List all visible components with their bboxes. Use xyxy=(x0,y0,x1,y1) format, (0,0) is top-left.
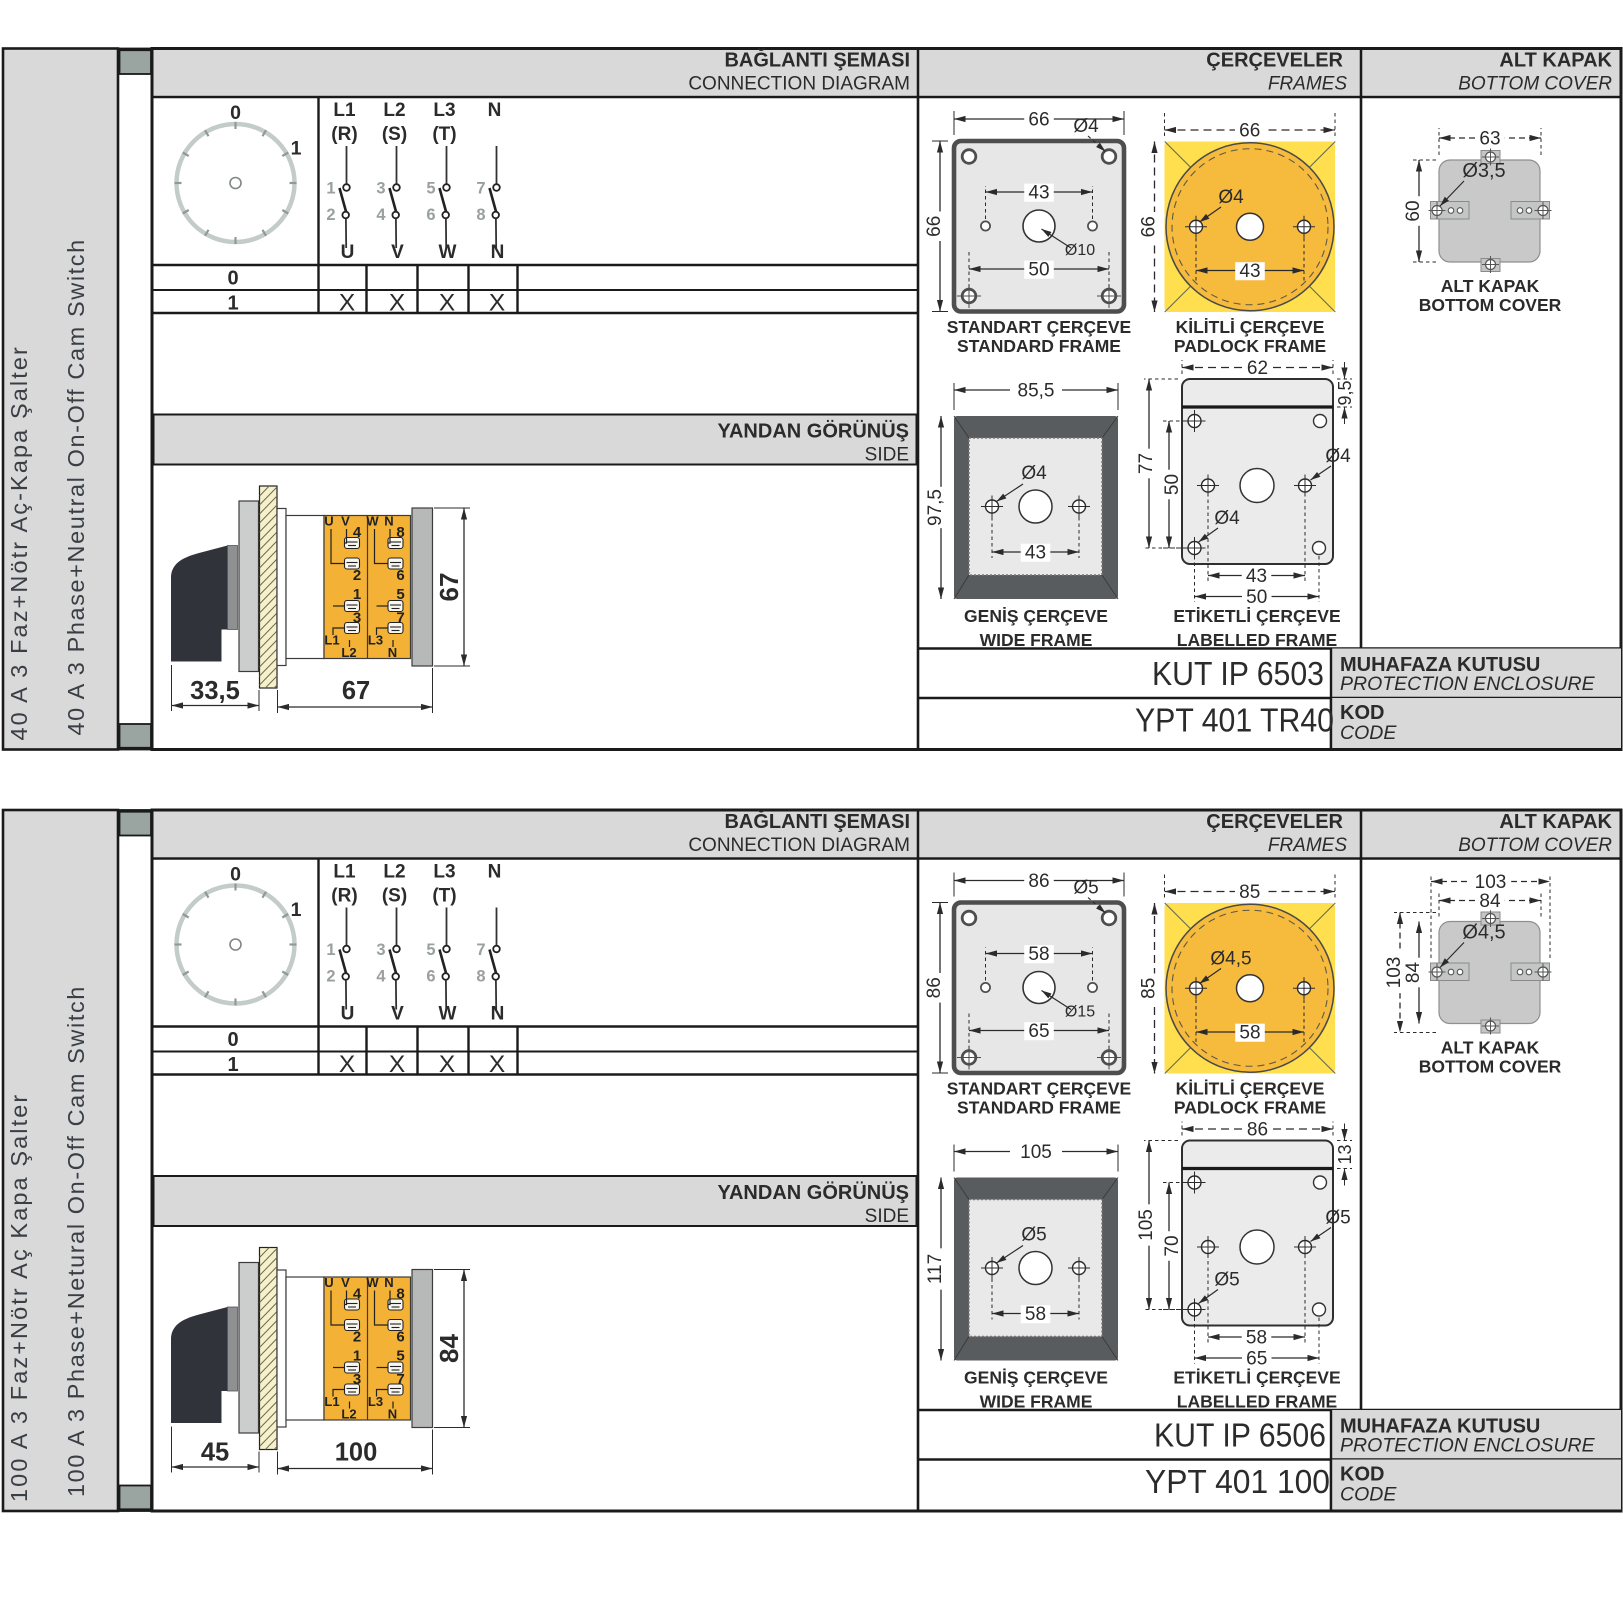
svg-text:43: 43 xyxy=(1246,566,1267,587)
svg-text:BOTTOM COVER: BOTTOM COVER xyxy=(1458,835,1612,856)
svg-text:3: 3 xyxy=(376,941,385,959)
svg-text:ALT KAPAK: ALT KAPAK xyxy=(1441,1038,1540,1058)
svg-text:ALT KAPAK: ALT KAPAK xyxy=(1499,811,1612,833)
svg-text:Ø4,5: Ø4,5 xyxy=(1210,949,1251,970)
svg-text:BAĞLANTI ŞEMASI: BAĞLANTI ŞEMASI xyxy=(724,48,910,72)
svg-text:50: 50 xyxy=(1028,260,1049,281)
svg-text:KUT IP 6506: KUT IP 6506 xyxy=(1154,1417,1326,1454)
svg-text:84: 84 xyxy=(434,1334,464,1363)
svg-text:X: X xyxy=(439,1051,455,1078)
svg-text:V: V xyxy=(341,1275,350,1290)
svg-text:PROTECTION ENCLOSURE: PROTECTION ENCLOSURE xyxy=(1340,1435,1596,1457)
svg-text:N: N xyxy=(488,862,502,883)
svg-text:N: N xyxy=(384,514,393,529)
svg-text:X: X xyxy=(489,290,505,317)
svg-text:Ø10: Ø10 xyxy=(1065,242,1095,259)
svg-text:1: 1 xyxy=(291,138,302,160)
svg-text:100: 100 xyxy=(335,1439,378,1467)
svg-text:0: 0 xyxy=(230,864,241,886)
svg-text:Ø4: Ø4 xyxy=(1021,463,1047,484)
svg-text:7: 7 xyxy=(476,941,485,959)
svg-text:N: N xyxy=(384,1275,393,1290)
svg-text:N: N xyxy=(491,242,505,263)
svg-text:KUT IP 6503: KUT IP 6503 xyxy=(1152,655,1324,692)
svg-text:58: 58 xyxy=(1028,944,1049,965)
svg-text:43: 43 xyxy=(1028,183,1049,204)
svg-text:STANDART ÇERÇEVE: STANDART ÇERÇEVE xyxy=(947,317,1131,337)
svg-text:N: N xyxy=(491,1004,505,1025)
svg-text:97,5: 97,5 xyxy=(925,489,946,526)
svg-text:66: 66 xyxy=(1028,110,1049,131)
svg-text:1: 1 xyxy=(326,941,335,959)
svg-text:2: 2 xyxy=(326,968,335,986)
svg-text:X: X xyxy=(339,1051,355,1078)
svg-text:BAĞLANTI ŞEMASI: BAĞLANTI ŞEMASI xyxy=(724,809,910,833)
svg-text:X: X xyxy=(389,1051,405,1078)
svg-text:8: 8 xyxy=(476,968,485,986)
svg-text:N: N xyxy=(388,645,397,660)
svg-text:PROTECTION ENCLOSURE: PROTECTION ENCLOSURE xyxy=(1340,673,1596,695)
svg-text:40 A 3 Phase+Neutral On-Off Ca: 40 A 3 Phase+Neutral On-Off Cam Switch xyxy=(63,238,89,735)
svg-text:77: 77 xyxy=(1136,453,1157,474)
svg-text:X: X xyxy=(339,290,355,317)
svg-text:PADLOCK FRAME: PADLOCK FRAME xyxy=(1174,1098,1326,1118)
svg-text:40 A 3 Faz+Nötr Aç-Kapa Şalter: 40 A 3 Faz+Nötr Aç-Kapa Şalter xyxy=(6,345,32,740)
svg-text:W: W xyxy=(366,514,379,529)
svg-text:117: 117 xyxy=(925,1254,946,1284)
svg-text:X: X xyxy=(439,290,455,317)
svg-text:CONNECTION DIAGRAM: CONNECTION DIAGRAM xyxy=(688,835,910,856)
svg-text:KOD: KOD xyxy=(1340,702,1384,724)
svg-text:86: 86 xyxy=(924,977,945,998)
svg-text:(S): (S) xyxy=(382,886,407,907)
svg-text:Ø4: Ø4 xyxy=(1073,116,1099,137)
svg-text:9,5: 9,5 xyxy=(1335,380,1355,405)
svg-text:2: 2 xyxy=(353,1329,361,1346)
svg-text:W: W xyxy=(439,242,457,263)
svg-text:Ø5: Ø5 xyxy=(1021,1225,1046,1246)
svg-text:Ø5: Ø5 xyxy=(1073,878,1098,899)
svg-text:BOTTOM COVER: BOTTOM COVER xyxy=(1419,295,1562,315)
svg-text:WIDE FRAME: WIDE FRAME xyxy=(980,1392,1093,1412)
svg-text:X: X xyxy=(489,1051,505,1078)
svg-text:STANDARD FRAME: STANDARD FRAME xyxy=(957,336,1121,356)
svg-text:W: W xyxy=(439,1004,457,1025)
svg-text:U: U xyxy=(324,1275,333,1290)
svg-text:SIDE: SIDE xyxy=(865,445,909,466)
svg-text:BOTTOM COVER: BOTTOM COVER xyxy=(1419,1057,1562,1077)
svg-text:5: 5 xyxy=(426,941,435,959)
svg-text:ÇERÇEVELER: ÇERÇEVELER xyxy=(1206,811,1343,833)
svg-text:ALT KAPAK: ALT KAPAK xyxy=(1441,276,1540,296)
svg-text:L1: L1 xyxy=(324,633,339,648)
svg-text:6: 6 xyxy=(426,206,435,224)
svg-text:4: 4 xyxy=(376,206,386,224)
svg-text:KİLİTLİ ÇERÇEVE: KİLİTLİ ÇERÇEVE xyxy=(1176,1079,1325,1099)
svg-text:ÇERÇEVELER: ÇERÇEVELER xyxy=(1206,50,1343,72)
svg-text:ETİKETLİ ÇERÇEVE: ETİKETLİ ÇERÇEVE xyxy=(1173,1368,1340,1388)
svg-text:(R): (R) xyxy=(331,124,357,145)
svg-text:70: 70 xyxy=(1162,1235,1183,1256)
svg-text:105: 105 xyxy=(1020,1142,1052,1163)
svg-text:86: 86 xyxy=(1247,1120,1268,1141)
svg-text:100 A 3 Faz+Nötr Aç Kapa Şalte: 100 A 3 Faz+Nötr Aç Kapa Şalter xyxy=(6,1093,32,1502)
svg-text:58: 58 xyxy=(1025,1304,1046,1325)
svg-text:62: 62 xyxy=(1247,358,1268,379)
svg-text:L3: L3 xyxy=(433,862,455,883)
svg-text:ETİKETLİ ÇERÇEVE: ETİKETLİ ÇERÇEVE xyxy=(1173,606,1340,626)
svg-text:8: 8 xyxy=(476,206,485,224)
svg-text:X: X xyxy=(389,290,405,317)
svg-text:63: 63 xyxy=(1479,129,1500,150)
svg-text:L3: L3 xyxy=(433,100,455,121)
svg-text:Ø4: Ø4 xyxy=(1218,187,1244,208)
svg-text:(R): (R) xyxy=(331,886,357,907)
svg-text:CODE: CODE xyxy=(1340,722,1397,744)
svg-text:Ø4: Ø4 xyxy=(1214,508,1240,529)
svg-text:50: 50 xyxy=(1162,474,1183,495)
svg-text:L1: L1 xyxy=(333,862,356,883)
svg-text:GENİŞ ÇERÇEVE: GENİŞ ÇERÇEVE xyxy=(964,606,1108,626)
svg-text:L2: L2 xyxy=(383,862,405,883)
svg-text:Ø4,5: Ø4,5 xyxy=(1462,922,1505,944)
svg-text:L2: L2 xyxy=(341,1407,356,1422)
svg-text:KİLİTLİ ÇERÇEVE: KİLİTLİ ÇERÇEVE xyxy=(1176,317,1325,337)
svg-text:65: 65 xyxy=(1028,1021,1049,1042)
svg-text:0: 0 xyxy=(230,102,241,124)
svg-text:2: 2 xyxy=(326,206,335,224)
svg-text:YANDAN GÖRÜNÜŞ: YANDAN GÖRÜNÜŞ xyxy=(717,420,909,443)
svg-text:1: 1 xyxy=(291,899,302,921)
svg-text:85: 85 xyxy=(1139,978,1160,999)
svg-text:Ø3,5: Ø3,5 xyxy=(1462,160,1505,182)
svg-text:66: 66 xyxy=(924,216,945,237)
svg-text:0: 0 xyxy=(227,1029,238,1051)
svg-text:KOD: KOD xyxy=(1340,1464,1384,1486)
svg-text:67: 67 xyxy=(434,573,464,602)
svg-text:50: 50 xyxy=(1246,587,1267,608)
svg-text:4: 4 xyxy=(376,968,386,986)
svg-text:6: 6 xyxy=(426,968,435,986)
svg-text:L1: L1 xyxy=(324,1394,339,1409)
svg-text:YPT 401 TR40: YPT 401 TR40 xyxy=(1135,702,1334,739)
svg-text:7: 7 xyxy=(476,180,485,198)
svg-text:V: V xyxy=(341,514,350,529)
svg-text:45: 45 xyxy=(201,1439,229,1467)
svg-text:L2: L2 xyxy=(383,100,405,121)
svg-text:58: 58 xyxy=(1239,1023,1260,1044)
svg-text:13: 13 xyxy=(1335,1144,1355,1164)
svg-text:L3: L3 xyxy=(368,633,383,648)
svg-text:(T): (T) xyxy=(432,886,456,907)
svg-text:60: 60 xyxy=(1403,200,1424,221)
svg-text:CONNECTION DIAGRAM: CONNECTION DIAGRAM xyxy=(688,74,910,95)
svg-text:100 A 3 Phase+Netural On-Off C: 100 A 3 Phase+Netural On-Off Cam Switch xyxy=(63,985,89,1497)
svg-text:YANDAN GÖRÜNÜŞ: YANDAN GÖRÜNÜŞ xyxy=(717,1181,909,1204)
svg-text:L1: L1 xyxy=(333,100,356,121)
svg-text:105: 105 xyxy=(1136,1209,1157,1241)
svg-text:5: 5 xyxy=(426,180,435,198)
svg-text:0: 0 xyxy=(227,268,238,290)
svg-text:ALT KAPAK: ALT KAPAK xyxy=(1499,50,1612,72)
svg-text:N: N xyxy=(488,100,502,121)
svg-text:SIDE: SIDE xyxy=(865,1206,909,1227)
svg-text:103: 103 xyxy=(1384,957,1405,989)
svg-text:85: 85 xyxy=(1239,882,1260,903)
svg-text:W: W xyxy=(366,1275,379,1290)
svg-text:66: 66 xyxy=(1239,121,1260,142)
svg-text:YPT 401 100: YPT 401 100 xyxy=(1145,1463,1330,1500)
svg-text:3: 3 xyxy=(376,180,385,198)
svg-text:1: 1 xyxy=(227,293,238,315)
svg-text:1: 1 xyxy=(227,1054,238,1076)
svg-text:GENİŞ ÇERÇEVE: GENİŞ ÇERÇEVE xyxy=(964,1368,1108,1388)
svg-text:Ø5: Ø5 xyxy=(1214,1270,1239,1291)
svg-text:FRAMES: FRAMES xyxy=(1268,835,1348,856)
svg-text:STANDARD FRAME: STANDARD FRAME xyxy=(957,1098,1121,1118)
svg-text:6: 6 xyxy=(396,1329,404,1346)
svg-text:STANDART ÇERÇEVE: STANDART ÇERÇEVE xyxy=(947,1079,1131,1099)
svg-text:U: U xyxy=(341,1004,355,1025)
svg-text:Ø4: Ø4 xyxy=(1325,446,1351,467)
svg-text:86: 86 xyxy=(1028,871,1049,892)
svg-text:FRAMES: FRAMES xyxy=(1268,74,1348,95)
svg-text:N: N xyxy=(388,1407,397,1422)
svg-text:1: 1 xyxy=(326,180,335,198)
svg-text:U: U xyxy=(341,242,355,263)
svg-text:66: 66 xyxy=(1139,216,1160,237)
svg-text:L2: L2 xyxy=(341,645,356,660)
svg-text:67: 67 xyxy=(342,677,370,705)
svg-text:85,5: 85,5 xyxy=(1018,381,1055,402)
svg-text:U: U xyxy=(324,514,333,529)
svg-text:(S): (S) xyxy=(382,124,407,145)
svg-text:CODE: CODE xyxy=(1340,1484,1397,1506)
svg-text:33,5: 33,5 xyxy=(190,677,240,705)
svg-text:43: 43 xyxy=(1025,543,1046,564)
svg-text:Ø15: Ø15 xyxy=(1065,1004,1095,1021)
svg-text:WIDE FRAME: WIDE FRAME xyxy=(980,630,1093,650)
svg-text:LABELLED FRAME: LABELLED FRAME xyxy=(1177,630,1337,650)
svg-text:84: 84 xyxy=(1479,891,1501,912)
svg-text:PADLOCK FRAME: PADLOCK FRAME xyxy=(1174,336,1326,356)
svg-text:L3: L3 xyxy=(368,1394,383,1409)
svg-text:(T): (T) xyxy=(432,124,456,145)
svg-text:V: V xyxy=(391,1004,404,1025)
svg-text:V: V xyxy=(391,242,404,263)
svg-text:LABELLED FRAME: LABELLED FRAME xyxy=(1177,1392,1337,1412)
svg-text:65: 65 xyxy=(1246,1349,1267,1370)
svg-text:43: 43 xyxy=(1239,261,1260,282)
svg-text:103: 103 xyxy=(1475,872,1507,893)
svg-text:Ø5: Ø5 xyxy=(1325,1208,1350,1229)
svg-text:BOTTOM COVER: BOTTOM COVER xyxy=(1458,74,1612,95)
svg-text:58: 58 xyxy=(1246,1328,1267,1349)
svg-text:84: 84 xyxy=(1403,962,1424,984)
